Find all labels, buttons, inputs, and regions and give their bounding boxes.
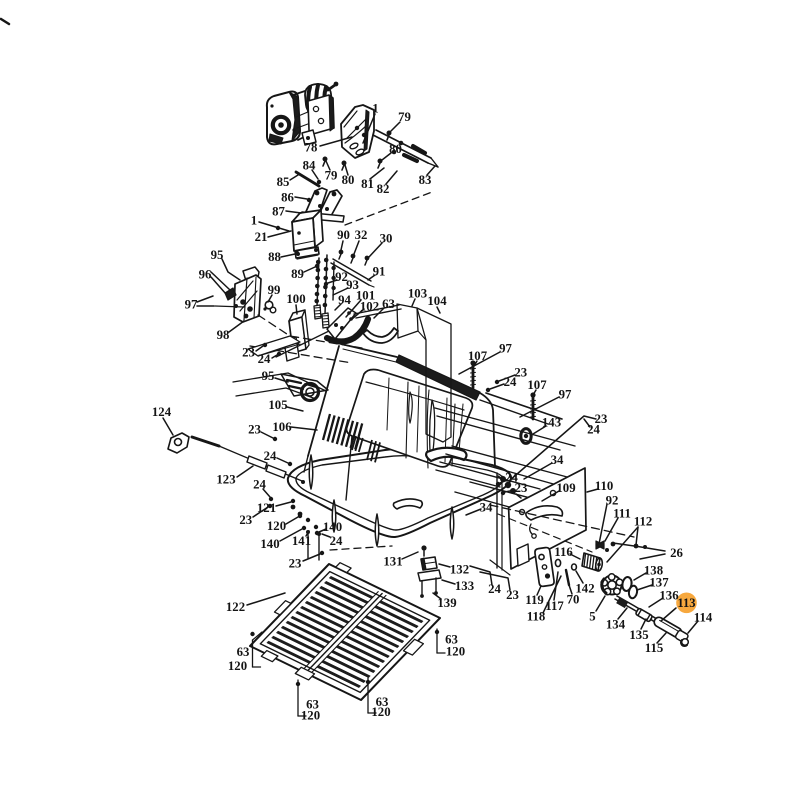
svg-text:24: 24 — [587, 423, 600, 437]
svg-text:102: 102 — [360, 300, 379, 314]
svg-text:1: 1 — [372, 102, 378, 116]
svg-text:87: 87 — [272, 205, 285, 219]
svg-text:133: 133 — [455, 579, 474, 593]
svg-text:83: 83 — [419, 173, 432, 187]
svg-text:107: 107 — [527, 378, 547, 392]
svg-text:118: 118 — [527, 610, 546, 624]
svg-text:86: 86 — [281, 191, 294, 205]
svg-text:85: 85 — [277, 175, 290, 189]
svg-text:140: 140 — [323, 520, 342, 534]
svg-text:95: 95 — [211, 248, 224, 262]
svg-text:131: 131 — [383, 555, 402, 569]
svg-text:63: 63 — [382, 297, 395, 311]
svg-text:23: 23 — [506, 588, 519, 602]
svg-text:142: 142 — [575, 582, 594, 596]
svg-text:139: 139 — [437, 596, 456, 610]
svg-text:99: 99 — [268, 283, 281, 297]
svg-text:63: 63 — [237, 645, 250, 659]
svg-text:141: 141 — [292, 534, 311, 548]
svg-text:143: 143 — [542, 416, 561, 430]
svg-text:32: 32 — [355, 228, 368, 242]
svg-text:24: 24 — [253, 478, 266, 492]
svg-text:95: 95 — [262, 369, 275, 383]
svg-text:80: 80 — [389, 142, 402, 156]
svg-text:24: 24 — [264, 449, 277, 463]
svg-text:1: 1 — [251, 214, 257, 228]
svg-text:88: 88 — [268, 250, 281, 264]
svg-text:111: 111 — [613, 507, 631, 521]
svg-text:132: 132 — [450, 563, 469, 577]
svg-text:103: 103 — [408, 287, 427, 301]
svg-text:23: 23 — [289, 557, 302, 571]
svg-text:124: 124 — [152, 405, 172, 419]
svg-text:34: 34 — [551, 453, 564, 467]
svg-text:137: 137 — [649, 576, 669, 590]
svg-text:24: 24 — [330, 534, 343, 548]
svg-text:120: 120 — [371, 705, 390, 719]
svg-text:26: 26 — [670, 546, 683, 560]
svg-text:92: 92 — [606, 494, 619, 508]
svg-text:90: 90 — [337, 228, 350, 242]
svg-text:107: 107 — [468, 349, 488, 363]
svg-text:104: 104 — [427, 294, 447, 308]
svg-text:5: 5 — [589, 610, 595, 624]
svg-text:79: 79 — [398, 110, 411, 124]
svg-text:122: 122 — [226, 600, 245, 614]
svg-text:140: 140 — [260, 537, 279, 551]
svg-text:136: 136 — [659, 589, 679, 603]
svg-text:91: 91 — [373, 265, 386, 279]
svg-text:23: 23 — [515, 481, 528, 495]
svg-text:106: 106 — [272, 420, 292, 434]
svg-text:79: 79 — [325, 169, 338, 183]
svg-text:23: 23 — [239, 513, 252, 527]
svg-text:120: 120 — [228, 659, 247, 673]
svg-text:135: 135 — [629, 628, 648, 642]
svg-text:134: 134 — [606, 618, 626, 632]
svg-text:81: 81 — [361, 177, 374, 191]
svg-text:96: 96 — [199, 268, 212, 282]
svg-text:94: 94 — [338, 293, 351, 307]
svg-text:78: 78 — [305, 141, 318, 155]
svg-text:82: 82 — [377, 182, 390, 196]
svg-text:100: 100 — [286, 292, 305, 306]
svg-text:113: 113 — [677, 596, 695, 610]
svg-text:23: 23 — [242, 346, 255, 360]
svg-text:110: 110 — [595, 479, 614, 493]
svg-text:24: 24 — [258, 352, 271, 366]
svg-text:34: 34 — [480, 501, 493, 515]
svg-text:109: 109 — [556, 481, 575, 495]
svg-text:119: 119 — [525, 593, 544, 607]
svg-text:116: 116 — [554, 545, 573, 559]
svg-text:98: 98 — [217, 328, 230, 342]
svg-text:120: 120 — [446, 645, 465, 659]
svg-text:80: 80 — [342, 173, 355, 187]
svg-text:115: 115 — [645, 641, 664, 655]
svg-text:114: 114 — [694, 611, 713, 625]
svg-text:24: 24 — [504, 375, 517, 389]
svg-text:24: 24 — [488, 582, 501, 596]
svg-text:120: 120 — [267, 519, 286, 533]
svg-text:84: 84 — [303, 159, 316, 173]
svg-text:97: 97 — [499, 342, 512, 356]
svg-text:121: 121 — [257, 501, 276, 515]
svg-text:89: 89 — [291, 267, 304, 281]
svg-text:105: 105 — [268, 398, 287, 412]
svg-text:112: 112 — [634, 515, 653, 529]
svg-text:123: 123 — [216, 473, 235, 487]
svg-text:117: 117 — [545, 599, 564, 613]
svg-text:97: 97 — [185, 298, 198, 312]
svg-text:97: 97 — [559, 388, 572, 402]
svg-text:23: 23 — [248, 423, 261, 437]
svg-text:21: 21 — [255, 230, 268, 244]
svg-text:30: 30 — [380, 232, 393, 246]
svg-text:120: 120 — [301, 709, 320, 723]
